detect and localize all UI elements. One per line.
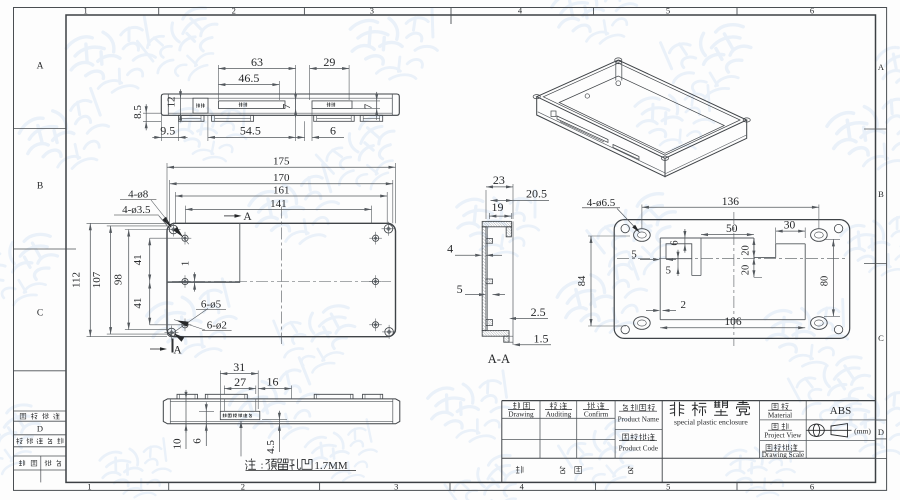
svg-text:170: 170 [273,172,290,184]
svg-text:D: D [37,424,43,434]
svg-text:98: 98 [113,274,125,286]
svg-text:4.5: 4.5 [265,440,277,454]
svg-text:1: 1 [180,261,192,267]
svg-text:2: 2 [232,6,236,16]
svg-text:46.5: 46.5 [238,71,259,85]
svg-text:41: 41 [132,298,144,309]
svg-text:84: 84 [577,275,588,286]
svg-text:Project View: Project View [764,432,802,440]
svg-text:6: 6 [192,438,204,444]
svg-text:80: 80 [819,276,830,287]
svg-text:D: D [878,427,884,437]
svg-text:C: C [37,309,43,319]
svg-text:Material: Material [768,411,792,419]
svg-text:Drawing: Drawing [508,411,534,419]
svg-text:Product Name: Product Name [618,416,659,424]
svg-text:6-ø5: 6-ø5 [201,299,222,311]
svg-text:10: 10 [171,438,183,450]
svg-text:2.5: 2.5 [531,305,546,319]
svg-text:1: 1 [83,6,87,16]
svg-text:1.5: 1.5 [534,332,549,346]
svg-text:161: 161 [273,185,290,197]
svg-text:special plastic enclosure: special plastic enclosure [674,418,748,427]
svg-text:9.5: 9.5 [160,123,175,137]
svg-text:3: 3 [394,482,398,492]
svg-text:12: 12 [166,97,178,108]
svg-text:ABS: ABS [830,405,851,417]
svg-text:2: 2 [241,482,245,492]
svg-text:112: 112 [71,272,83,288]
svg-text:Drawing Scale: Drawing Scale [762,451,805,459]
svg-text:C: C [878,333,884,343]
svg-text:29: 29 [323,55,335,69]
svg-text:6: 6 [670,240,681,245]
svg-text:136: 136 [722,196,740,208]
svg-text:30: 30 [784,220,796,232]
svg-text:1.7MM: 1.7MM [314,460,348,472]
svg-text:5: 5 [666,6,670,16]
svg-text:6: 6 [810,6,814,16]
svg-text:1: 1 [87,482,91,492]
svg-text:A: A [173,345,182,357]
svg-text:6: 6 [810,482,814,492]
svg-text:5: 5 [457,282,463,296]
svg-text:16: 16 [267,375,279,389]
svg-text:2: 2 [681,299,687,311]
svg-text:4: 4 [520,482,525,492]
svg-text:4: 4 [447,241,453,255]
svg-text:A: A [243,211,252,223]
svg-text:A-A: A-A [488,352,510,366]
svg-text:A: A [37,62,44,72]
svg-text:27: 27 [234,375,246,389]
svg-text:31: 31 [233,360,245,374]
svg-text::: : [261,461,264,472]
svg-text:4-ø3.5: 4-ø3.5 [122,204,151,216]
svg-text:A: A [878,62,885,72]
svg-text:41: 41 [132,254,144,265]
svg-text:5: 5 [631,249,637,261]
svg-text:3: 3 [370,6,374,16]
svg-text:B: B [878,189,884,199]
svg-text:8.5: 8.5 [132,105,144,119]
svg-text:Product Code: Product Code [619,445,658,453]
svg-text:7: 7 [281,103,293,109]
svg-text:Confirm: Confirm [584,411,609,419]
svg-text:23: 23 [493,173,505,187]
svg-text:7: 7 [362,103,374,109]
svg-text:Auditing: Auditing [546,411,572,419]
svg-text:(mm): (mm) [854,426,871,435]
svg-text:50: 50 [726,223,738,235]
svg-text:5: 5 [666,482,670,492]
svg-text:106: 106 [724,316,742,328]
svg-text:54.5: 54.5 [240,123,261,137]
svg-text:63: 63 [251,55,263,69]
svg-text:4-ø8: 4-ø8 [128,189,149,201]
svg-text:6: 6 [330,123,336,137]
svg-text:107: 107 [91,271,103,288]
svg-text:20.5: 20.5 [526,187,547,201]
svg-text:4-ø6.5: 4-ø6.5 [587,197,616,209]
svg-text:20: 20 [740,265,751,276]
svg-text:5: 5 [666,265,672,277]
svg-text:141: 141 [270,198,287,210]
svg-text:6-ø2: 6-ø2 [207,320,227,332]
svg-text:20: 20 [740,245,751,256]
svg-text:19: 19 [492,200,504,214]
svg-text:B: B [37,182,43,192]
svg-text:175: 175 [273,156,290,168]
